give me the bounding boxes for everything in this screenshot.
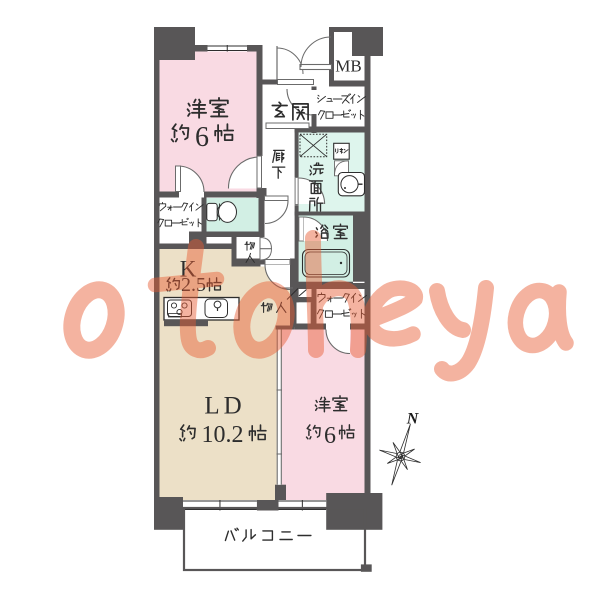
svg-text:6: 6	[195, 122, 209, 153]
svg-text:10.2: 10.2	[202, 422, 244, 448]
svg-text:6: 6	[324, 423, 336, 449]
svg-text:MB: MB	[335, 57, 361, 76]
svg-text:LD: LD	[204, 393, 245, 420]
svg-text:N: N	[406, 411, 420, 428]
